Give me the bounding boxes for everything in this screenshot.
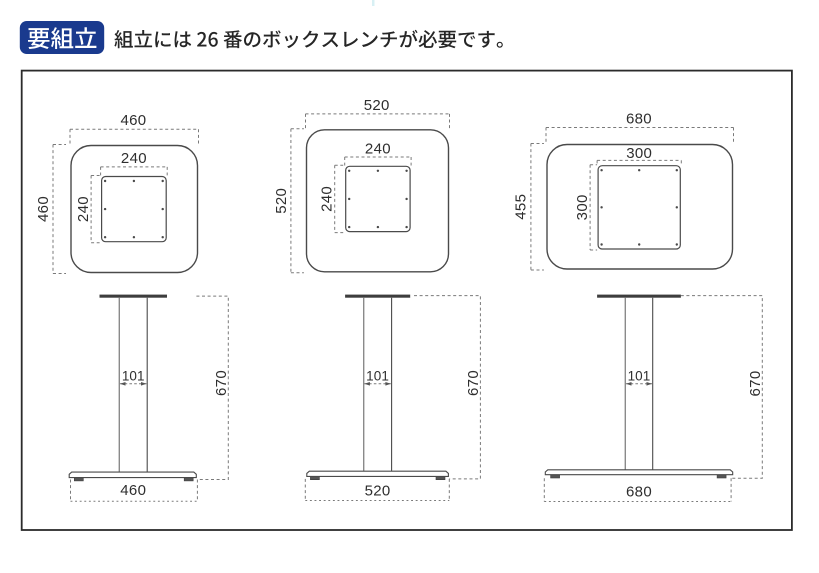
svg-text:460: 460 (35, 196, 52, 222)
svg-text:680: 680 (626, 483, 652, 500)
svg-text:240: 240 (319, 186, 336, 212)
svg-text:300: 300 (574, 194, 591, 220)
svg-text:240: 240 (121, 150, 147, 167)
svg-text:101: 101 (366, 369, 389, 384)
svg-text:680: 680 (626, 110, 652, 127)
svg-text:101: 101 (628, 369, 651, 384)
svg-text:520: 520 (365, 482, 391, 499)
svg-text:670: 670 (465, 370, 482, 396)
svg-text:101: 101 (122, 369, 145, 384)
svg-text:300: 300 (626, 145, 652, 162)
svg-text:460: 460 (120, 112, 146, 129)
svg-text:670: 670 (747, 371, 764, 397)
svg-text:455: 455 (512, 194, 529, 220)
svg-text:240: 240 (365, 140, 391, 157)
svg-text:520: 520 (364, 97, 390, 114)
svg-text:520: 520 (273, 188, 290, 214)
svg-text:460: 460 (120, 482, 146, 499)
svg-text:670: 670 (213, 370, 230, 396)
svg-text:240: 240 (75, 196, 92, 222)
